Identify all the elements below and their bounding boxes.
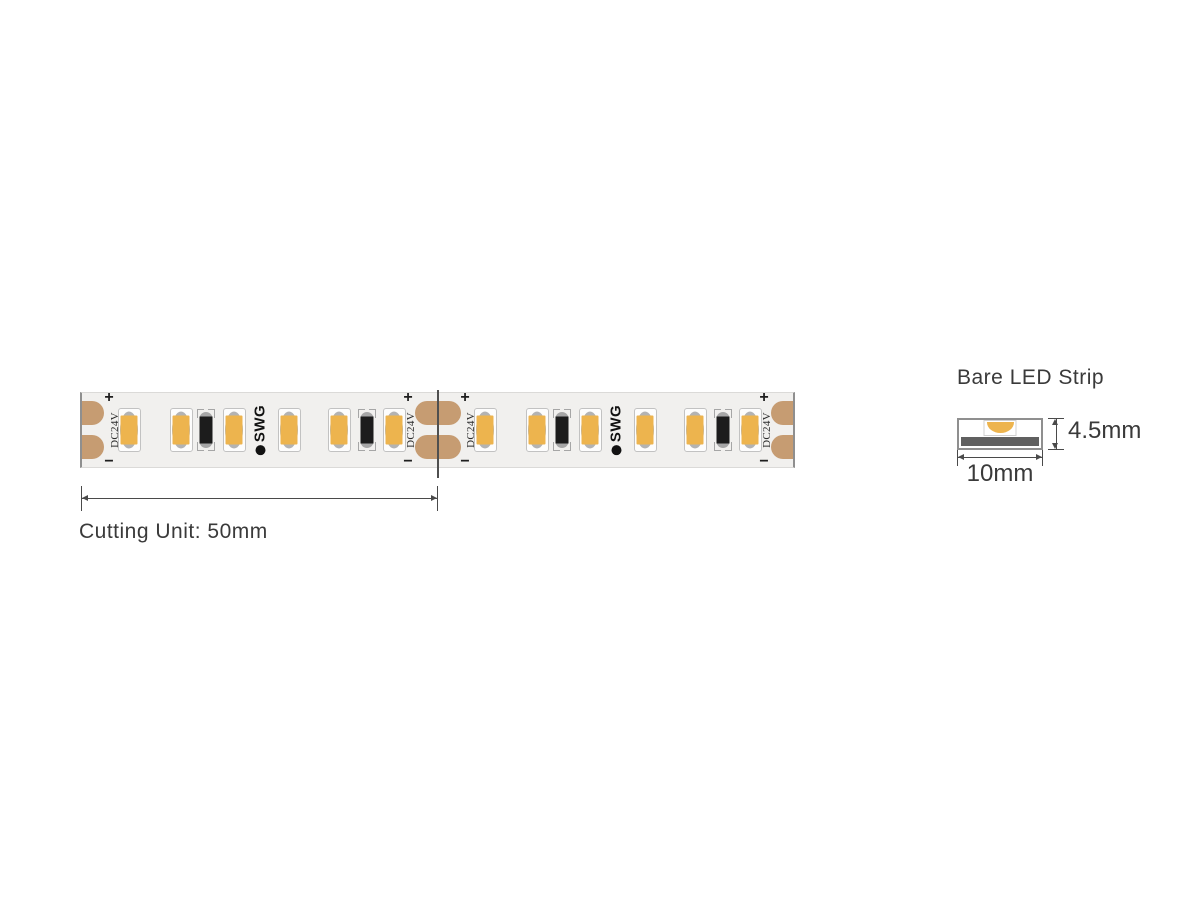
resistor: [358, 409, 376, 451]
led-phosphor: [742, 416, 759, 445]
led-chip: [579, 408, 602, 452]
led-package: [984, 420, 1017, 436]
cutting-unit-dimension: [81, 486, 438, 511]
led-phosphor: [582, 416, 599, 445]
voltage-label: DC24V: [761, 412, 773, 448]
arrow-right-icon: [431, 495, 437, 501]
resistor-body: [556, 417, 569, 444]
resistor-pad-corner: [197, 442, 204, 451]
resistor-pad-corner: [714, 409, 721, 418]
resistor-pad-corner: [725, 442, 732, 451]
resistor-pad-corner: [208, 409, 215, 418]
resistor-pad-corner: [369, 442, 376, 451]
resistor-pad-corner: [564, 442, 571, 451]
arrow-down-icon: [1052, 443, 1058, 449]
dimension-line: [82, 498, 437, 499]
brand-dot-icon: [255, 445, 265, 455]
resistor-body: [717, 417, 730, 444]
dimension-tick: [1048, 449, 1064, 450]
resistor: [714, 409, 732, 451]
resistor-body: [361, 417, 374, 444]
polarity-plus: +: [459, 390, 471, 406]
led-chip: [739, 408, 762, 452]
voltage-label: DC24V: [109, 412, 121, 448]
voltage-label: DC24V: [465, 412, 477, 448]
resistor-pad-corner: [553, 409, 560, 418]
bare-strip-title: Bare LED Strip: [957, 366, 1104, 390]
polarity-minus: −: [103, 454, 115, 470]
resistor-pad-corner: [358, 442, 365, 451]
dimension-tick: [437, 486, 438, 511]
resistor-pad-corner: [714, 442, 721, 451]
led-chip: [383, 408, 406, 452]
arrow-left-icon: [82, 495, 88, 501]
brand-mark: SWG: [252, 405, 269, 455]
polarity-minus: −: [459, 454, 471, 470]
cross-section-diagram: [957, 418, 1043, 450]
resistor-pad-corner: [553, 442, 560, 451]
resistor-pad-corner: [564, 409, 571, 418]
led-chip: [526, 408, 549, 452]
resistor-pad-corner: [358, 409, 365, 418]
led-phosphor: [477, 416, 494, 445]
resistor-pad-corner: [197, 409, 204, 418]
led-chip: [223, 408, 246, 452]
brand-dot-icon: [611, 445, 621, 455]
height-dimension: [1048, 418, 1064, 450]
led-chip: [684, 408, 707, 452]
arrow-left-icon: [958, 454, 964, 460]
led-phosphor: [121, 416, 138, 445]
resistor-body: [200, 417, 213, 444]
led-chip: [634, 408, 657, 452]
diagram-canvas: SWGDC24VDC24V+−+−SWGDC24VDC24V+−+− Cutti…: [0, 0, 1200, 900]
voltage-label: DC24V: [405, 412, 417, 448]
arrow-up-icon: [1052, 419, 1058, 425]
brand-label: SWG: [252, 405, 269, 442]
polarity-minus: −: [758, 454, 770, 470]
polarity-plus: +: [103, 390, 115, 406]
led-phosphor: [331, 416, 348, 445]
led-phosphor: [281, 416, 298, 445]
led-phosphor: [529, 416, 546, 445]
led-phosphor: [637, 416, 654, 445]
width-label: 10mm: [957, 460, 1043, 488]
resistor: [197, 409, 215, 451]
pcb-layer: [961, 437, 1039, 446]
resistor: [553, 409, 571, 451]
dimension-line: [1056, 419, 1057, 449]
dimension-line: [958, 457, 1042, 458]
resistor-pad-corner: [369, 409, 376, 418]
polarity-plus: +: [402, 390, 414, 406]
led-phosphor: [386, 416, 403, 445]
polarity-plus: +: [758, 390, 770, 406]
resistor-pad-corner: [725, 409, 732, 418]
led-phosphor: [173, 416, 190, 445]
cut-line: [437, 390, 439, 478]
strip-unit: SWGDC24VDC24V+−+−: [82, 393, 438, 467]
cutting-unit-label: Cutting Unit: 50mm: [79, 520, 268, 544]
arrow-right-icon: [1036, 454, 1042, 460]
led-dome: [987, 422, 1014, 433]
height-label: 4.5mm: [1068, 417, 1141, 445]
brand-mark: SWG: [608, 405, 625, 455]
led-chip: [278, 408, 301, 452]
led-chip: [328, 408, 351, 452]
polarity-minus: −: [402, 454, 414, 470]
strip-unit: SWGDC24VDC24V+−+−: [438, 393, 794, 467]
led-chip: [170, 408, 193, 452]
led-phosphor: [687, 416, 704, 445]
resistor-pad-corner: [208, 442, 215, 451]
brand-label: SWG: [608, 405, 625, 442]
led-phosphor: [226, 416, 243, 445]
